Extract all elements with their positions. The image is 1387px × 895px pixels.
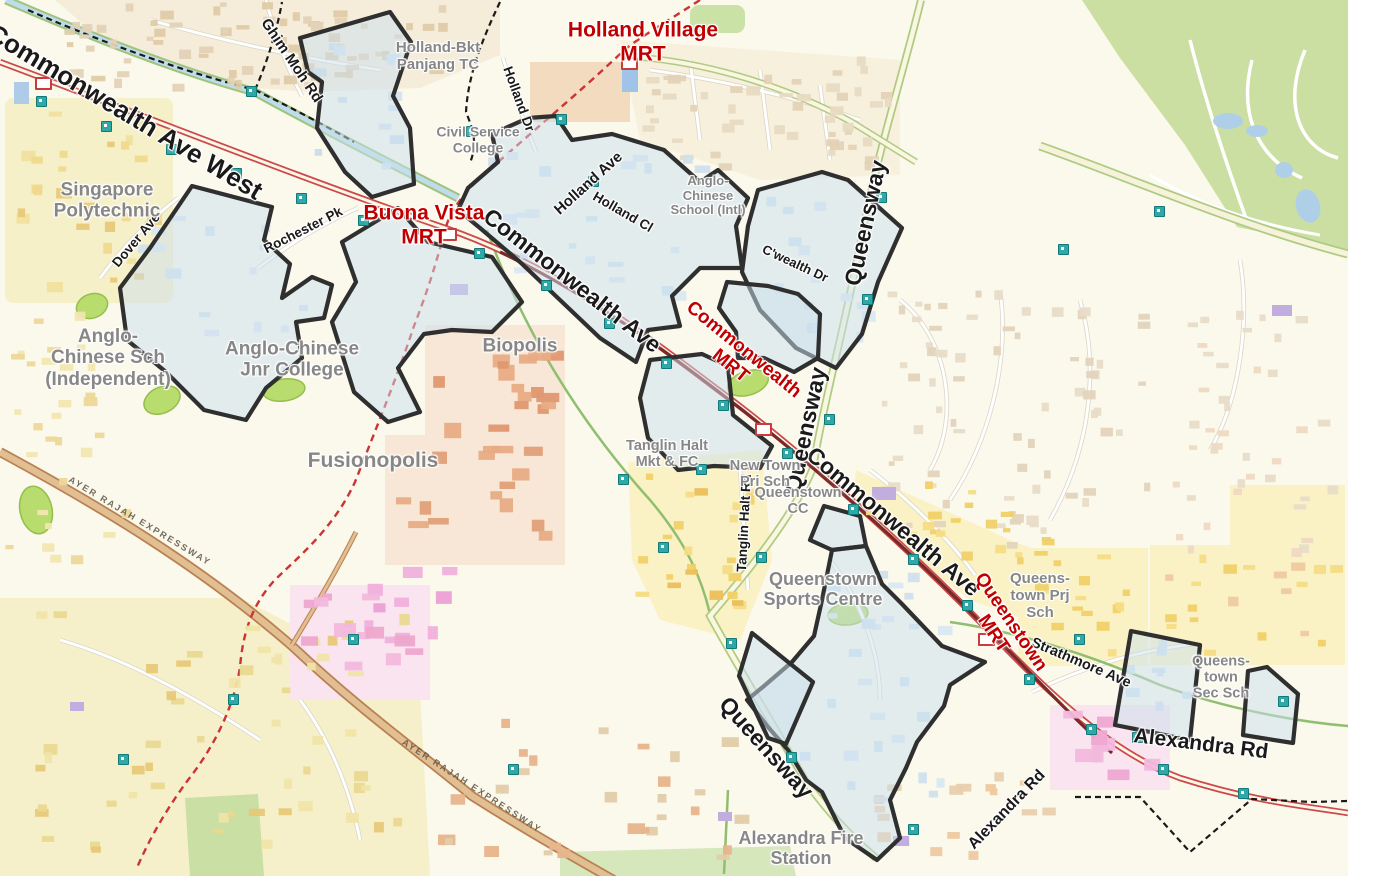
bus-stop-icon	[1074, 634, 1085, 645]
bus-stop-icon	[726, 638, 737, 649]
bus-stop-icon	[246, 86, 257, 97]
bus-stop-icon	[1154, 206, 1165, 217]
screenshot-stage: Commonwealth Ave WestCommonwealth AveCom…	[0, 0, 1387, 895]
bus-stop-icon	[118, 754, 129, 765]
place-label-anglo: Anglo- Chinese School (Intl)	[670, 174, 745, 218]
mrt-label-buona-vista: Buona Vista MRT	[364, 201, 485, 248]
place-label-queenstown: Queenstown Sports Centre	[763, 569, 882, 609]
bus-stop-icon	[824, 414, 835, 425]
bus-stop-icon	[1086, 724, 1097, 735]
place-label-singapore: Singapore Polytechnic	[54, 180, 161, 223]
bus-stop-icon	[1238, 788, 1249, 799]
bus-stop-icon	[296, 193, 307, 204]
place-label-tanglin-halt: Tanglin Halt Mkt & FC	[626, 438, 708, 470]
mrt-label-holland-village: Holland Village MRT	[568, 18, 718, 65]
map-canvas[interactable]: Commonwealth Ave WestCommonwealth AveCom…	[0, 0, 1348, 876]
mrt-station-icon	[755, 423, 772, 436]
place-label-queens: Queens- town Prj Sch	[1010, 571, 1070, 621]
place-label-civil-service: Civil Service College	[436, 124, 519, 155]
bus-stop-icon	[661, 358, 672, 369]
bus-stop-icon	[101, 121, 112, 132]
estate-boundary	[1243, 667, 1298, 743]
bus-stop-icon	[228, 694, 239, 705]
bus-stop-icon	[908, 824, 919, 835]
bus-stop-icon	[508, 764, 519, 775]
place-label-anglo: Anglo- Chinese Sch (Independent)	[45, 326, 171, 390]
bus-stop-icon	[556, 114, 567, 125]
bus-stop-icon	[36, 96, 47, 107]
bus-stop-icon	[1058, 244, 1069, 255]
place-label-queenstown: Queenstown CC	[754, 485, 841, 517]
bus-stop-icon	[1278, 696, 1289, 707]
bus-stop-icon	[658, 542, 669, 553]
bus-stop-icon	[756, 552, 767, 563]
bus-stop-icon	[618, 474, 629, 485]
place-label-queens: Queens- town Sec Sch	[1192, 654, 1250, 703]
bus-stop-icon	[862, 294, 873, 305]
bus-stop-icon	[348, 634, 359, 645]
place-label-holland-bkt: Holland-Bkt Panjang TC	[396, 40, 480, 74]
bus-stop-icon	[1158, 764, 1169, 775]
bus-stop-icon	[718, 400, 729, 411]
place-label-alexandra-fire: Alexandra Fire Station	[738, 828, 863, 868]
bus-stop-icon	[474, 248, 485, 259]
place-label-anglo-chinese: Anglo-Chinese Jnr College	[225, 339, 359, 382]
place-label-fusionopolis: Fusionopolis	[308, 449, 439, 473]
bus-stop-icon	[541, 280, 552, 291]
place-label-biopolis: Biopolis	[483, 335, 558, 356]
